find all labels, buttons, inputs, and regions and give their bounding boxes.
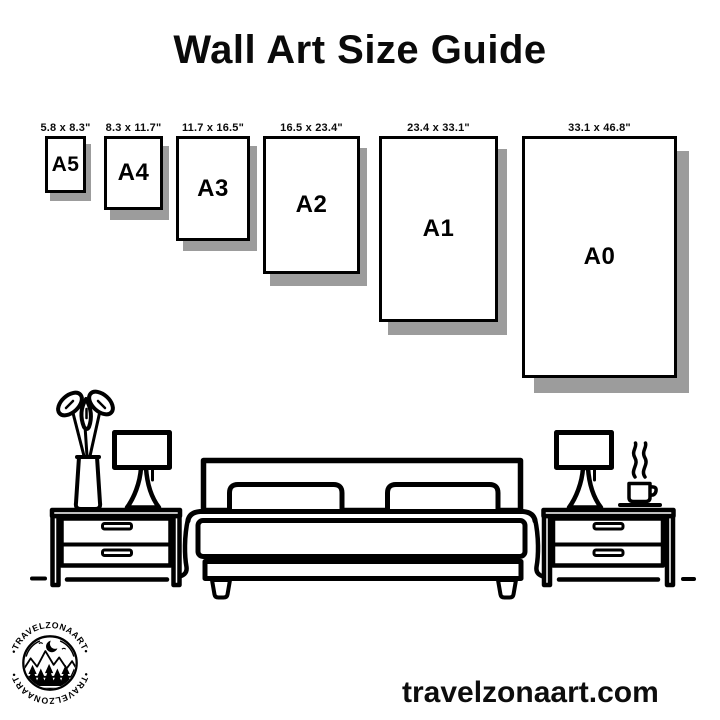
coffee-cup bbox=[620, 443, 660, 505]
table-lamp-left bbox=[115, 433, 170, 508]
size-item-a5: 5.8 x 8.3" A5 bbox=[45, 136, 86, 193]
size-item-a1: 23.4 x 33.1" A1 bbox=[379, 136, 498, 322]
size-code-a0: A0 bbox=[584, 243, 616, 271]
website-url: travelzonaart.com bbox=[402, 676, 659, 710]
bed-base bbox=[205, 562, 521, 579]
pillow-left bbox=[230, 485, 343, 512]
size-code-a4: A4 bbox=[118, 159, 150, 187]
size-dimensions-a4: 8.3 x 11.7" bbox=[106, 122, 162, 134]
page-title: Wall Art Size Guide bbox=[0, 28, 720, 73]
size-item-a2: 16.5 x 23.4" A2 bbox=[263, 136, 360, 274]
size-dimensions-a0: 33.1 x 46.8" bbox=[568, 122, 631, 134]
size-item-a3: 11.7 x 16.5" A3 bbox=[176, 136, 250, 241]
size-code-a2: A2 bbox=[296, 191, 328, 219]
bed-foot-right bbox=[498, 580, 516, 598]
bedroom-illustration bbox=[0, 380, 720, 600]
nightstand-right bbox=[544, 510, 674, 585]
table-lamp-right bbox=[557, 433, 612, 508]
size-code-a5: A5 bbox=[52, 153, 80, 177]
steam-icon bbox=[633, 443, 636, 477]
size-dimensions-a2: 16.5 x 23.4" bbox=[280, 122, 343, 134]
steam-icon bbox=[643, 443, 646, 477]
size-dimensions-a3: 11.7 x 16.5" bbox=[182, 122, 244, 134]
size-code-a1: A1 bbox=[423, 215, 455, 243]
size-code-a3: A3 bbox=[197, 175, 229, 203]
bed bbox=[180, 461, 543, 598]
size-item-a0: 33.1 x 46.8" A0 bbox=[522, 136, 677, 378]
size-dimensions-a5: 5.8 x 8.3" bbox=[40, 122, 90, 134]
pillow-right bbox=[388, 485, 499, 512]
brand-logo: •TRAVELZONAART• •TRAVELZONAART• bbox=[4, 616, 96, 710]
bed-foot-left bbox=[212, 580, 230, 598]
nightstand-left bbox=[52, 510, 180, 585]
size-item-a4: 8.3 x 11.7" A4 bbox=[104, 136, 163, 210]
mattress bbox=[198, 521, 525, 557]
size-dimensions-a1: 23.4 x 33.1" bbox=[407, 122, 470, 134]
plant-vase bbox=[54, 387, 117, 509]
